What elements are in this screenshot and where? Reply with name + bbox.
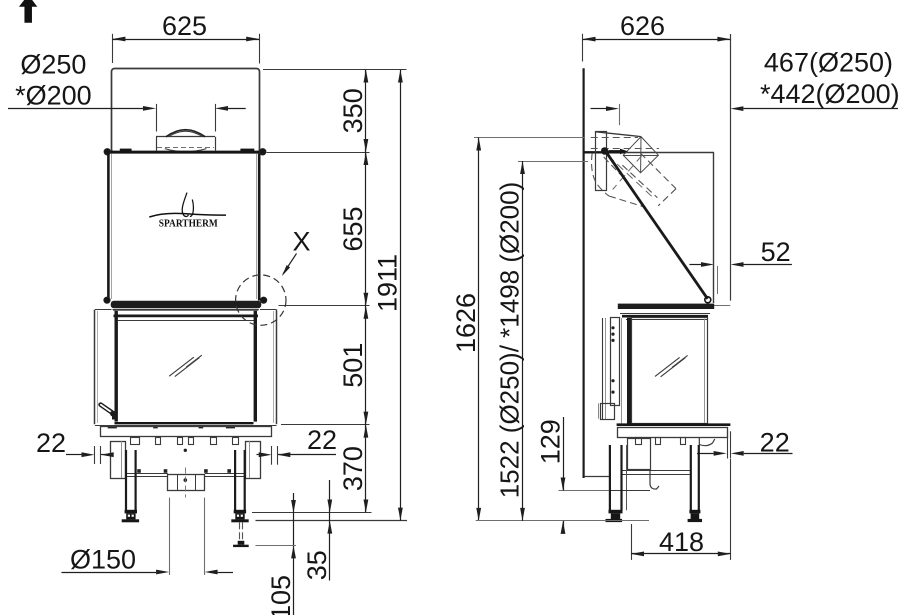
svg-text:1911: 1911 xyxy=(373,254,403,312)
svg-text:X: X xyxy=(292,227,310,257)
svg-text:1522 (Ø250)/ *1498 (Ø200): 1522 (Ø250)/ *1498 (Ø200) xyxy=(495,182,525,499)
svg-text:129: 129 xyxy=(535,419,565,464)
svg-text:370: 370 xyxy=(338,446,368,491)
svg-text:*Ø200: *Ø200 xyxy=(15,81,92,111)
svg-text:Ø150: Ø150 xyxy=(70,545,136,575)
svg-text:655: 655 xyxy=(338,206,368,251)
svg-text:350: 350 xyxy=(338,88,368,133)
svg-text:467(Ø250): 467(Ø250) xyxy=(764,47,893,77)
svg-text:22: 22 xyxy=(36,428,66,458)
svg-text:*442(Ø200): *442(Ø200) xyxy=(760,79,900,109)
svg-text:501: 501 xyxy=(338,343,368,388)
svg-text:625: 625 xyxy=(162,11,207,41)
svg-text:SPARTHERM: SPARTHERM xyxy=(159,219,218,230)
svg-text:626: 626 xyxy=(620,11,665,41)
svg-text:1626: 1626 xyxy=(451,293,481,353)
svg-text:418: 418 xyxy=(659,527,704,557)
svg-text:22: 22 xyxy=(760,427,790,457)
svg-text:52: 52 xyxy=(761,237,791,267)
svg-text:Ø250: Ø250 xyxy=(20,50,86,80)
svg-text:22: 22 xyxy=(307,425,337,455)
svg-text:105: 105 xyxy=(266,575,296,615)
svg-text:35: 35 xyxy=(302,550,332,580)
